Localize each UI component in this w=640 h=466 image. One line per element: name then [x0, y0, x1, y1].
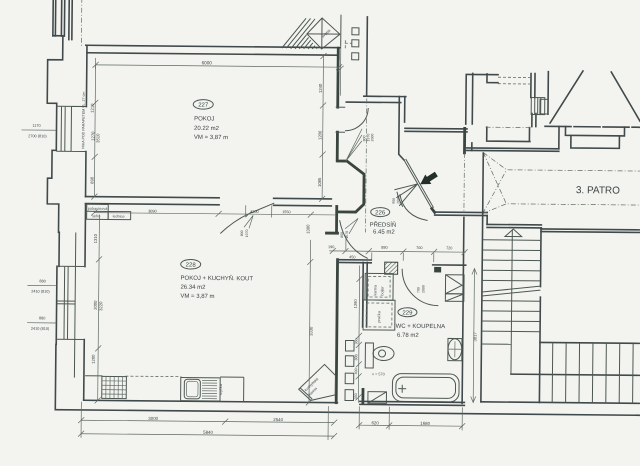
svg-text:700: 700	[416, 287, 420, 293]
svg-text:VM = 3,87 m: VM = 3,87 m	[180, 294, 214, 300]
svg-text:2700 (810): 2700 (810)	[28, 134, 47, 138]
svg-text:720: 720	[446, 246, 452, 250]
svg-text:2000: 2000	[421, 285, 425, 293]
svg-text:227: 227	[198, 103, 209, 109]
svg-text:PŘEDSÍŇ: PŘEDSÍŇ	[370, 220, 397, 228]
svg-text:6000: 6000	[202, 60, 213, 65]
svg-text:2410 (810): 2410 (810)	[31, 327, 50, 331]
svg-text:bojler: bojler	[380, 286, 384, 296]
svg-text:800: 800	[354, 354, 358, 360]
svg-text:900: 900	[392, 198, 396, 204]
svg-text:300: 300	[354, 338, 358, 344]
svg-text:880: 880	[39, 279, 45, 283]
svg-text:450: 450	[349, 255, 355, 259]
svg-text:700: 700	[416, 246, 422, 250]
svg-text:1300: 1300	[305, 224, 310, 234]
svg-text:1200: 1200	[91, 354, 96, 364]
svg-text:3090: 3090	[148, 209, 156, 213]
svg-text:228: 228	[186, 263, 197, 269]
svg-text:3220: 3220	[98, 301, 103, 311]
svg-text:1200: 1200	[250, 210, 258, 214]
svg-text:6.45 m2: 6.45 m2	[373, 230, 395, 236]
svg-text:WC + KOUPELNA: WC + KOUPELNA	[396, 324, 446, 330]
svg-text:20.22 m2: 20.22 m2	[194, 126, 220, 132]
svg-text:1170: 1170	[32, 124, 40, 128]
svg-text:3330: 3330	[309, 326, 314, 336]
svg-text:226: 226	[375, 210, 386, 216]
svg-text:3017: 3017	[472, 331, 477, 341]
svg-text:NIKA POD PARAPETEM VL. 27 cm: NIKA POD PARAPETEM VL. 27 cm	[81, 92, 86, 149]
svg-text:3000: 3000	[148, 416, 158, 421]
svg-text:1210: 1210	[90, 103, 95, 113]
svg-text:VM = 3,87 m: VM = 3,87 m	[194, 135, 228, 141]
svg-text:1680: 1680	[420, 421, 430, 426]
svg-text:800: 800	[240, 230, 244, 236]
svg-text:1550: 1550	[282, 210, 290, 214]
svg-text:880: 880	[381, 246, 387, 250]
svg-text:1310: 1310	[93, 233, 98, 243]
svg-text:2540: 2540	[273, 417, 283, 422]
svg-text:2000: 2000	[93, 300, 98, 310]
svg-text:3. PATRO: 3. PATRO	[576, 185, 620, 196]
svg-text:3510: 3510	[95, 133, 100, 143]
svg-text:pračka: pračka	[377, 310, 381, 322]
svg-text:POKOJ: POKOJ	[194, 116, 214, 122]
svg-text:1970: 1970	[245, 229, 249, 237]
svg-text:26.34 m2: 26.34 m2	[180, 285, 206, 291]
svg-text:2600: 2600	[370, 134, 374, 142]
svg-text:1200: 1200	[317, 130, 322, 140]
svg-text:880: 880	[39, 316, 45, 320]
svg-text:6.78 m2: 6.78 m2	[397, 333, 419, 339]
svg-text:350: 350	[354, 393, 358, 399]
svg-text:lednice: lednice	[113, 215, 125, 219]
svg-text:1390: 1390	[353, 299, 358, 309]
svg-text:620: 620	[371, 420, 379, 425]
svg-text:myčka: myčka	[219, 383, 223, 395]
svg-text:2410 (810): 2410 (810)	[31, 290, 50, 294]
svg-text:890: 890	[89, 176, 94, 184]
svg-text:POKOJ + KUCHYŇ. KOUT: POKOJ + KUCHYŇ. KOUT	[181, 275, 254, 283]
svg-text:400: 400	[354, 368, 358, 374]
svg-text:potravinová: potravinová	[88, 207, 109, 211]
svg-text:v = 570: v = 570	[372, 372, 385, 376]
svg-text:karma: karma	[373, 284, 377, 295]
svg-text:1240: 1240	[318, 83, 323, 93]
svg-text:2600: 2600	[396, 196, 400, 204]
svg-text:229: 229	[402, 310, 413, 316]
svg-text:1085: 1085	[317, 177, 322, 187]
svg-text:190: 190	[328, 245, 334, 249]
svg-text:5840: 5840	[203, 430, 213, 435]
